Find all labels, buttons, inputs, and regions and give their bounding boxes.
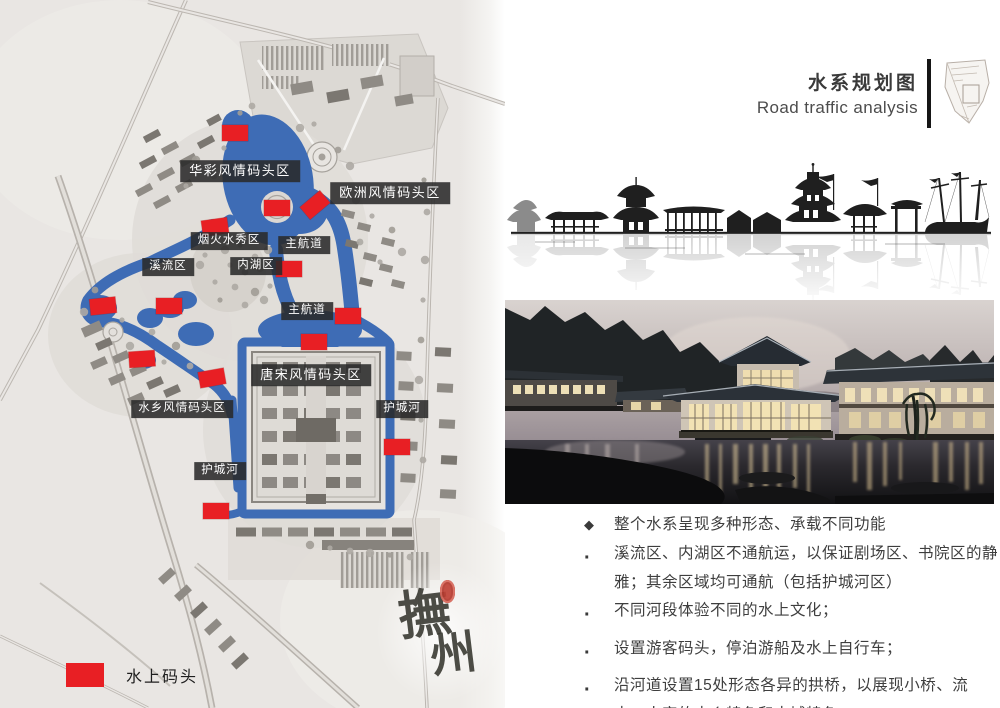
map-zone-label: 欧洲风情码头区 bbox=[330, 182, 450, 204]
analysis-bullet: ◆整个水系呈现多种形态、承载不同功能 bbox=[584, 511, 998, 540]
analysis-bullet: ·不同河段体验不同的水上文化； bbox=[584, 597, 998, 634]
title-chinese: 水系规划图 bbox=[690, 68, 918, 95]
dock-marker bbox=[89, 297, 117, 316]
map-zone-label: 内湖区 bbox=[230, 257, 282, 275]
legend-dock-label: 水上码头 bbox=[126, 663, 198, 687]
map-thumbnail bbox=[939, 57, 993, 129]
dock-marker bbox=[301, 334, 327, 350]
map-zone-label: 水乡风情码头区 bbox=[131, 400, 233, 418]
dock-marker bbox=[156, 298, 182, 314]
bullet-text: 整个水系呈现多种形态、承载不同功能 bbox=[614, 511, 998, 540]
map-zone-label: 溪流区 bbox=[142, 258, 194, 276]
site-plan-map: 华彩风情码头区欧洲风情码头区烟火水秀区主航道溪流区内湖区主航道唐宋风情码头区水乡… bbox=[0, 0, 505, 708]
bullet-text: 不同河段体验不同的水上文化； bbox=[614, 597, 998, 626]
dock-marker bbox=[222, 125, 248, 141]
map-zone-label: 华彩风情码头区 bbox=[180, 160, 300, 182]
legend-dock-swatch bbox=[66, 663, 104, 687]
bullet-icon: ◆ bbox=[584, 511, 614, 537]
page-header: 水系规划图 Road traffic analysis bbox=[690, 68, 918, 118]
bullet-icon: · bbox=[584, 672, 614, 708]
analysis-bullet: ·溪流区、内湖区不通航运，以保证剧场区、书院区的静雅；其余区域均可通航（包括护城… bbox=[584, 540, 998, 598]
map-legend: 水上码头 bbox=[66, 663, 198, 687]
elevation-sketch bbox=[505, 162, 997, 302]
map-zone-label: 主航道 bbox=[278, 236, 330, 254]
analysis-bullet: ·设置游客码头，停泊游船及水上自行车； bbox=[584, 635, 998, 672]
map-zone-label: 唐宋风情码头区 bbox=[251, 364, 371, 386]
header-divider bbox=[927, 59, 931, 128]
slide-page: 华彩风情码头区欧洲风情码头区烟火水秀区主航道溪流区内湖区主航道唐宋风情码头区水乡… bbox=[0, 0, 1000, 708]
bullet-icon: · bbox=[584, 540, 614, 577]
bullet-text: 溪流区、内湖区不通航运，以保证剧场区、书院区的静雅；其余区域均可通航（包括护城河… bbox=[614, 540, 998, 598]
map-zone-label: 护城河 bbox=[194, 462, 246, 480]
title-english: Road traffic analysis bbox=[690, 98, 918, 118]
bullet-text: 沿河道设置15处形态各异的拱桥，以展现小桥、流水、人家的水乡特色和古城特色。 bbox=[614, 672, 998, 708]
site-plan-art bbox=[0, 0, 505, 708]
dock-marker bbox=[335, 308, 361, 324]
dock-marker bbox=[203, 503, 229, 519]
map-zone-label: 烟火水秀区 bbox=[191, 232, 268, 250]
bullet-icon: · bbox=[584, 597, 614, 634]
dock-marker bbox=[384, 439, 410, 455]
dock-marker bbox=[128, 350, 155, 368]
waterfront-render bbox=[505, 300, 994, 504]
map-zone-label: 主航道 bbox=[281, 302, 333, 320]
analysis-bullet: ·沿河道设置15处形态各异的拱桥，以展现小桥、流水、人家的水乡特色和古城特色。 bbox=[584, 672, 998, 708]
map-zone-label: 护城河 bbox=[376, 400, 428, 418]
bullet-icon: · bbox=[584, 635, 614, 672]
dock-marker bbox=[264, 200, 290, 216]
analysis-text: ◆整个水系呈现多种形态、承载不同功能·溪流区、内湖区不通航运，以保证剧场区、书院… bbox=[584, 511, 998, 708]
bullet-text: 设置游客码头，停泊游船及水上自行车； bbox=[614, 635, 998, 664]
